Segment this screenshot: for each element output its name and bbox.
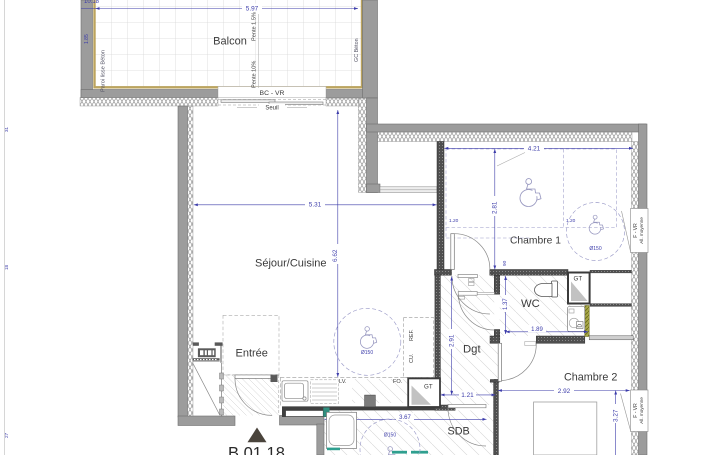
svg-text:REF.: REF. [409,329,415,341]
svg-text:Pente 10%: Pente 10% [252,61,258,88]
svg-text:LV.: LV. [339,379,347,385]
svg-text:1.37: 1.37 [503,298,509,310]
svg-text:Chambre 2: Chambre 2 [564,372,617,384]
svg-text:F - VR: F - VR [633,403,639,418]
svg-text:BC - VR: BC - VR [260,90,285,97]
svg-text:Ø150: Ø150 [361,350,373,356]
svg-text:27: 27 [4,432,9,438]
svg-text:Séjour/Cuisine: Séjour/Cuisine [255,258,327,270]
svg-text:1.85: 1.85 [84,34,90,44]
svg-text:3.67: 3.67 [399,415,411,421]
svg-text:90: 90 [502,260,508,266]
svg-text:1.20: 1.20 [449,218,459,224]
svg-text:GT: GT [424,384,433,391]
svg-text:FO.: FO. [393,379,403,385]
svg-text:3.27: 3.27 [612,409,619,422]
svg-text:CU.: CU. [409,354,415,363]
svg-text:Ø150: Ø150 [589,246,601,252]
svg-text:WC: WC [521,298,540,310]
svg-text:All. moyenne: All. moyenne [639,397,644,424]
svg-text:31: 31 [4,126,9,132]
svg-text:5.97: 5.97 [246,6,259,13]
svg-text:1.21: 1.21 [461,392,474,399]
svg-text:2.81: 2.81 [492,201,499,214]
svg-text:GC Béton: GC Béton [354,38,360,62]
svg-text:SDB: SDB [448,426,470,438]
svg-text:18: 18 [4,264,9,270]
svg-text:B 01 18: B 01 18 [228,445,285,455]
svg-text:Chambre 1: Chambre 1 [510,236,561,247]
svg-text:1.89: 1.89 [531,327,543,333]
svg-text:Paroi lisse Béton: Paroi lisse Béton [101,50,107,92]
svg-text:Entrée: Entrée [236,348,268,360]
svg-text:Balcon: Balcon [213,36,247,48]
svg-text:D: D [578,324,584,328]
svg-text:GT: GT [574,276,583,283]
svg-text:2.91: 2.91 [448,334,455,347]
svg-text:F - VR: F - VR [633,223,639,238]
svg-text:Ø150: Ø150 [384,433,396,439]
svg-text:Pente 1.5%: Pente 1.5% [252,12,258,41]
svg-text:4.21: 4.21 [528,146,541,153]
svg-text:6.62: 6.62 [332,249,339,262]
svg-text:2.92: 2.92 [558,388,571,395]
svg-text:Seuil: Seuil [265,106,278,112]
svg-text:10.18: 10.18 [84,0,100,5]
svg-text:5.31: 5.31 [309,202,322,209]
svg-text:All. moyenne: All. moyenne [639,217,644,244]
svg-text:Dgt: Dgt [463,343,481,355]
